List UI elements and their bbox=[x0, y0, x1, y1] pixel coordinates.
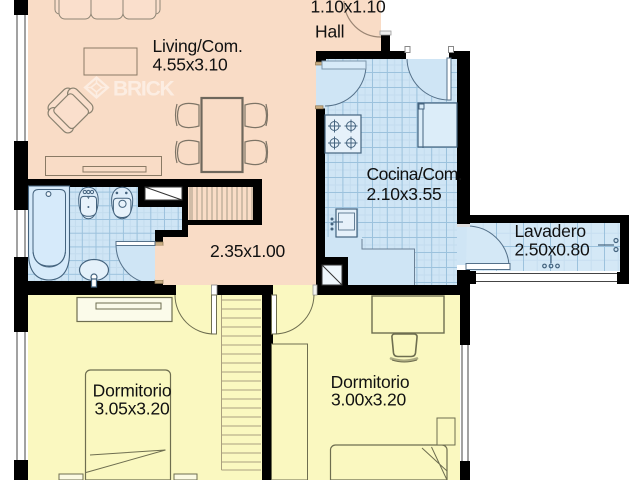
svg-text:Lavadero: Lavadero bbox=[515, 221, 586, 241]
svg-text:2.10x3.55: 2.10x3.55 bbox=[367, 184, 442, 204]
svg-text:Hall: Hall bbox=[315, 22, 344, 42]
svg-text:4.55x3.10: 4.55x3.10 bbox=[153, 55, 229, 75]
svg-text:Dormitorio: Dormitorio bbox=[93, 381, 172, 401]
svg-text:3.05x3.20: 3.05x3.20 bbox=[94, 399, 170, 419]
svg-text:Living/Com.: Living/Com. bbox=[153, 36, 243, 56]
svg-text:BRICK: BRICK bbox=[113, 77, 175, 100]
svg-text:1.10x1.10: 1.10x1.10 bbox=[311, 0, 387, 17]
svg-text:3.00x3.20: 3.00x3.20 bbox=[331, 390, 407, 410]
svg-text:2.35x1.00: 2.35x1.00 bbox=[210, 241, 286, 261]
svg-text:Cocina/Com.: Cocina/Com. bbox=[367, 164, 463, 184]
svg-text:2.50x0.80: 2.50x0.80 bbox=[515, 240, 591, 260]
